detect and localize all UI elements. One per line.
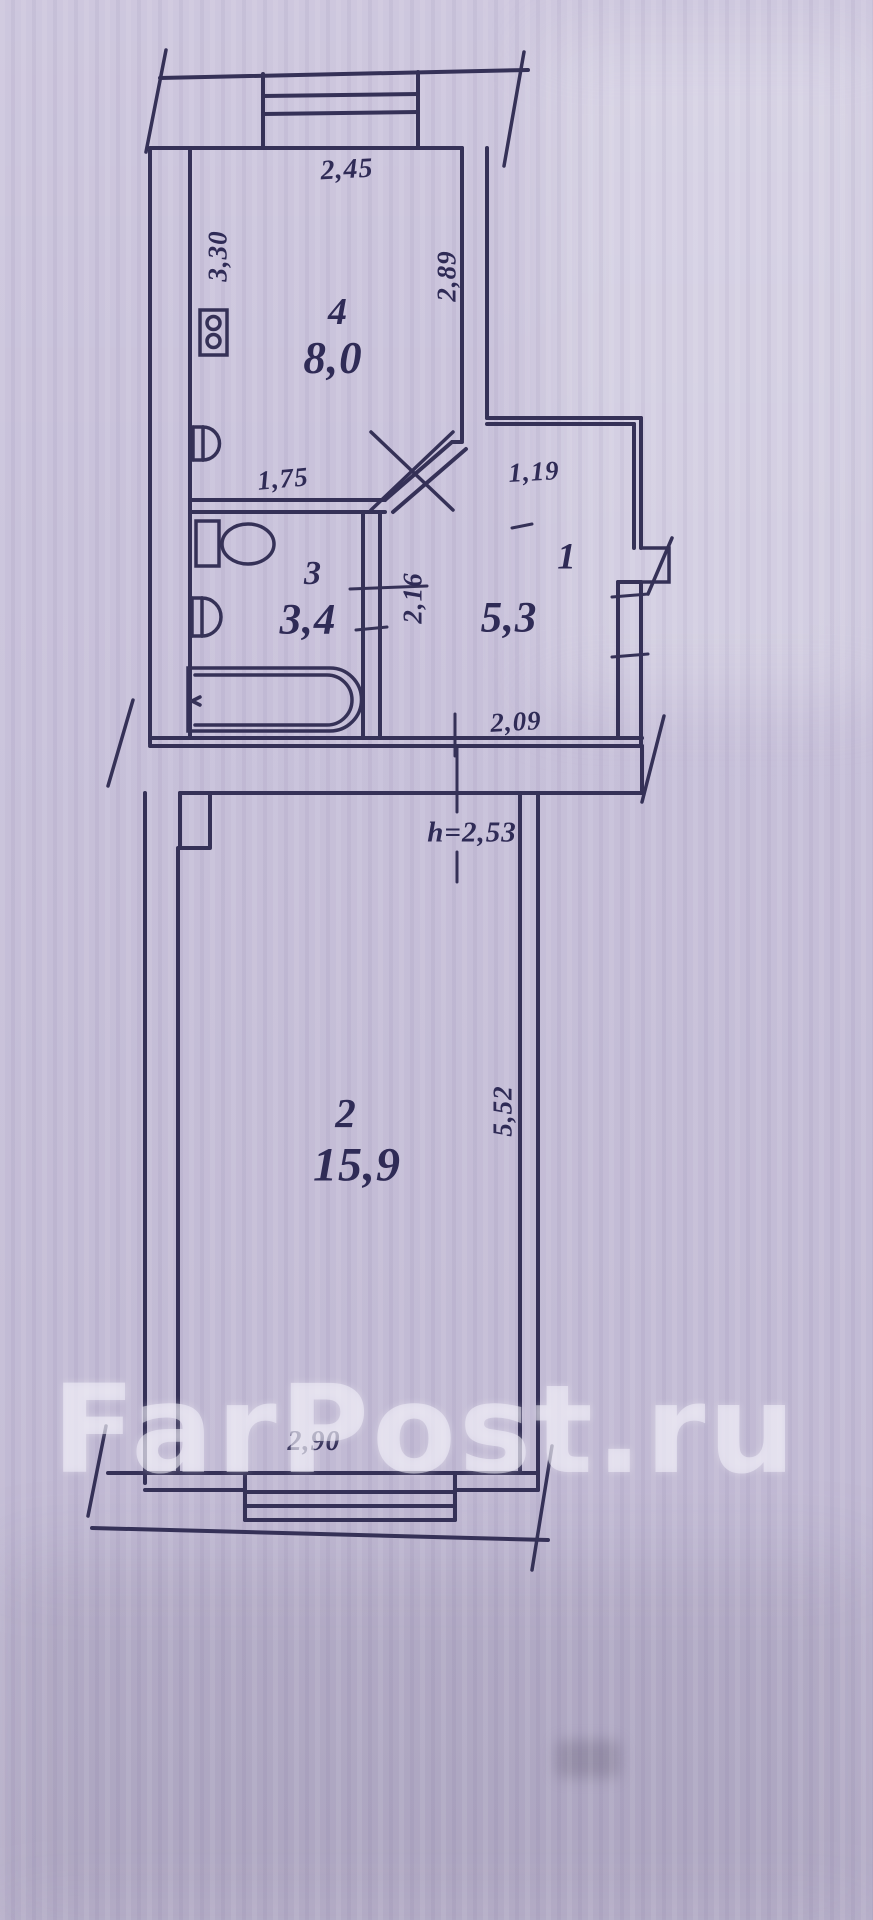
room-4-number: 4 [328,290,348,334]
toilet-icon [196,521,274,566]
entry-niche [641,538,672,594]
dim-bathroom-width: 1,75 [256,461,310,496]
room-1-number: 1 [557,536,577,579]
kitchen-sink-icon [193,427,220,460]
dim-kitchen-width: 2,45 [320,153,375,188]
dim-hallway-bottom: 2,09 [490,705,543,739]
dim-hallway-top: 1,19 [508,455,561,489]
room-3-area: 3,4 [280,596,337,645]
farpost-watermark: FarPost.ru [52,1366,798,1494]
kitchen-walls [462,148,487,440]
bathtub-icon [188,668,362,731]
dim-kitchen-depth: 3,30 [203,230,234,281]
stove-icon [200,310,227,355]
dim-kitchen-right-wall: 2,89 [432,250,463,301]
ceiling-height-note: h=2,53 [427,817,516,850]
room-4-area: 8,0 [303,332,362,384]
room-2-area: 15,9 [313,1138,401,1193]
room-2-number: 2 [335,1089,357,1137]
kitchen-window [263,72,418,148]
diagonal-door-wall [385,442,466,512]
room-1-area: 5,3 [481,594,538,643]
dim-living-depth: 5,52 [488,1085,519,1136]
dim-hallway-depth: 2,16 [398,572,429,623]
corner-hatch-marks [88,50,664,1570]
floor-plan-photo: 4 8,0 2,45 3,30 2,89 1,75 3 3,4 2,16 1 5… [0,0,873,1920]
bath-sink-icon [192,598,221,636]
room-3-number: 3 [304,555,322,593]
